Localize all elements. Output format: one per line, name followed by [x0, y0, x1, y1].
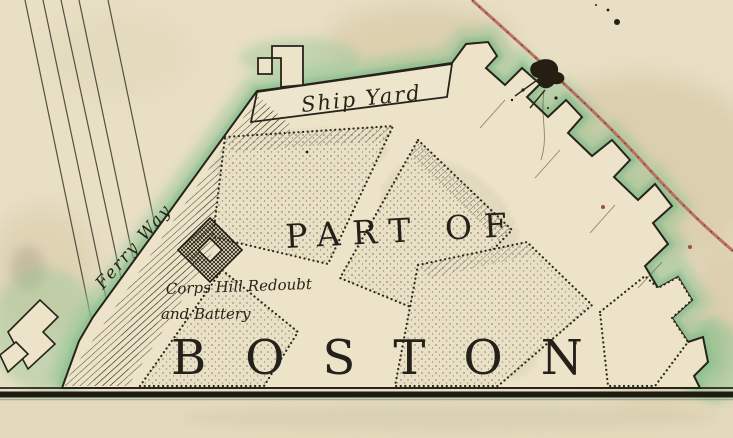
historic-boston-map: Ship Yard Ferry Way Corps Hill Redoubt a… [0, 0, 733, 438]
corps-hill-label-line2: and Battery [161, 305, 251, 323]
map-canvas: Ship Yard Ferry Way Corps Hill Redoubt a… [0, 0, 733, 438]
boston-title: BOSTON [171, 330, 621, 386]
